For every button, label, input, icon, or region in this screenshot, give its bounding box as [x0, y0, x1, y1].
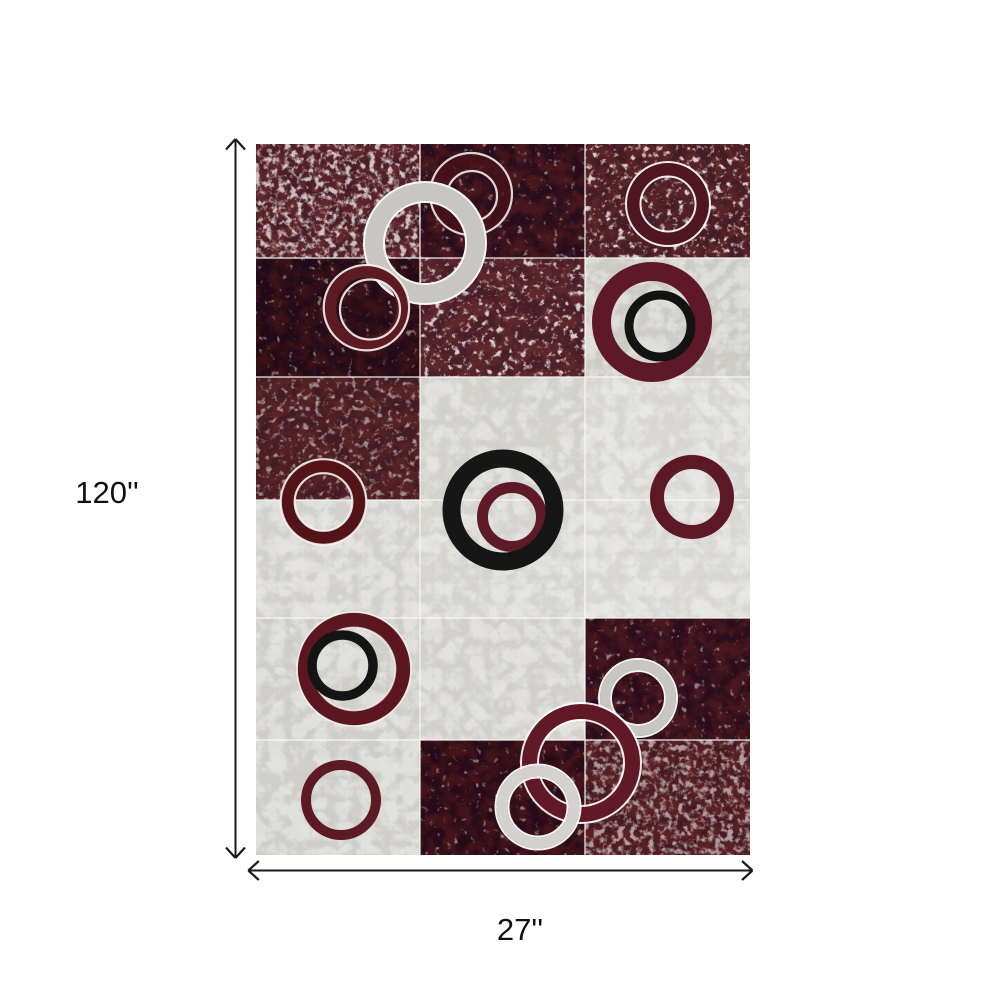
svg-text:27'': 27'': [497, 912, 543, 947]
svg-text:120'': 120'': [75, 475, 139, 510]
